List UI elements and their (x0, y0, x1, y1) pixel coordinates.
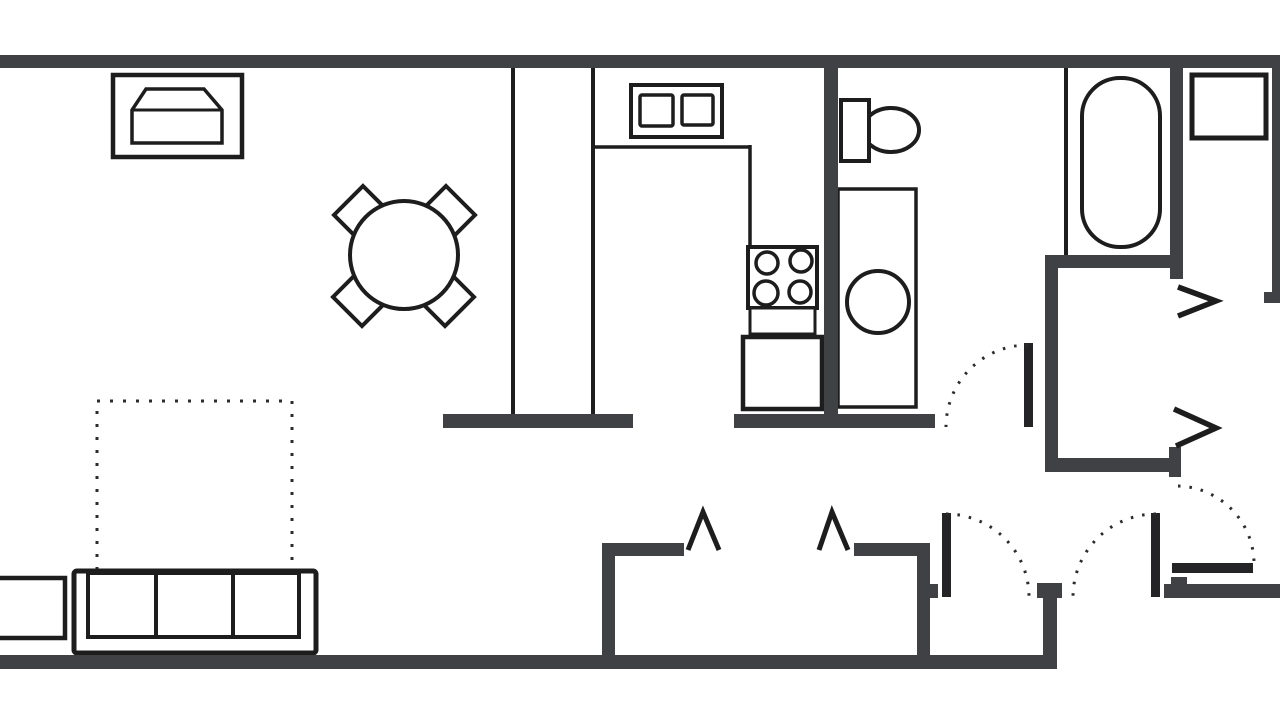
stove-base (750, 308, 815, 334)
bath-bottom-wall (734, 414, 935, 428)
double-door-swing-arc-right (1073, 514, 1156, 597)
right-edge-wall (1272, 60, 1280, 303)
right-door-swing-arc (1178, 486, 1254, 562)
closet-left-wall (602, 543, 615, 669)
kitchen-sink-basin-right (682, 95, 713, 125)
dining-table (350, 201, 458, 309)
right-edge-foot (1264, 292, 1280, 303)
bath-door-leaf (1024, 343, 1033, 427)
stove-burner-br (789, 281, 811, 303)
kitchen-cabinet (743, 337, 822, 409)
bathtub (1082, 78, 1160, 247)
toilet-tank (841, 100, 869, 161)
bifold-door-right-lower (1174, 409, 1216, 446)
bifold-door-right-upper (1178, 287, 1216, 316)
closet-right-wall (917, 543, 930, 669)
bath-door-swing-arc (946, 345, 1028, 427)
floor-plan (0, 0, 1280, 720)
washer (847, 271, 909, 333)
right-closet-wall (1170, 62, 1183, 279)
kitchen-sink-basin-left (640, 95, 673, 126)
tv-set (132, 89, 222, 143)
closet-door-stop (929, 584, 938, 598)
right-door-leaf (1172, 563, 1253, 573)
hall-left-wall (1045, 255, 1058, 472)
hall-top-wall (1045, 255, 1180, 268)
double-door-swing-arc-left (946, 514, 1029, 597)
stove-burner-bl (754, 281, 778, 305)
stove-burner-tr (790, 250, 812, 272)
top-wall (0, 55, 1280, 68)
bedroom-left-wall (1043, 597, 1057, 669)
bedroom-center-stub (1037, 583, 1062, 598)
floor-plan-svg (0, 0, 1280, 720)
counter-base-wall (443, 414, 633, 428)
sofa-cushion-middle (156, 573, 233, 637)
side-table (0, 578, 65, 638)
double-door-leaf-right (1151, 513, 1160, 597)
toilet-bowl (863, 108, 919, 152)
hall-bottom-wall-end (1169, 447, 1181, 477)
closet-top-left-wall (602, 543, 684, 556)
stove-burner-tl (756, 252, 778, 274)
bifold-door-closet-right (819, 512, 848, 550)
bathroom-sink (1192, 75, 1266, 138)
right-door-hinge (1171, 577, 1187, 593)
bottom-wall (0, 655, 1057, 669)
bifold-door-closet-left (688, 512, 719, 550)
hall-bottom-wall (1045, 458, 1181, 472)
rug-outline-dotted (97, 401, 292, 570)
kitchen-bath-wall (824, 62, 838, 428)
sofa-cushion-right (233, 573, 299, 637)
sofa-cushion-left (88, 573, 156, 637)
double-door-leaf-left (942, 513, 951, 597)
